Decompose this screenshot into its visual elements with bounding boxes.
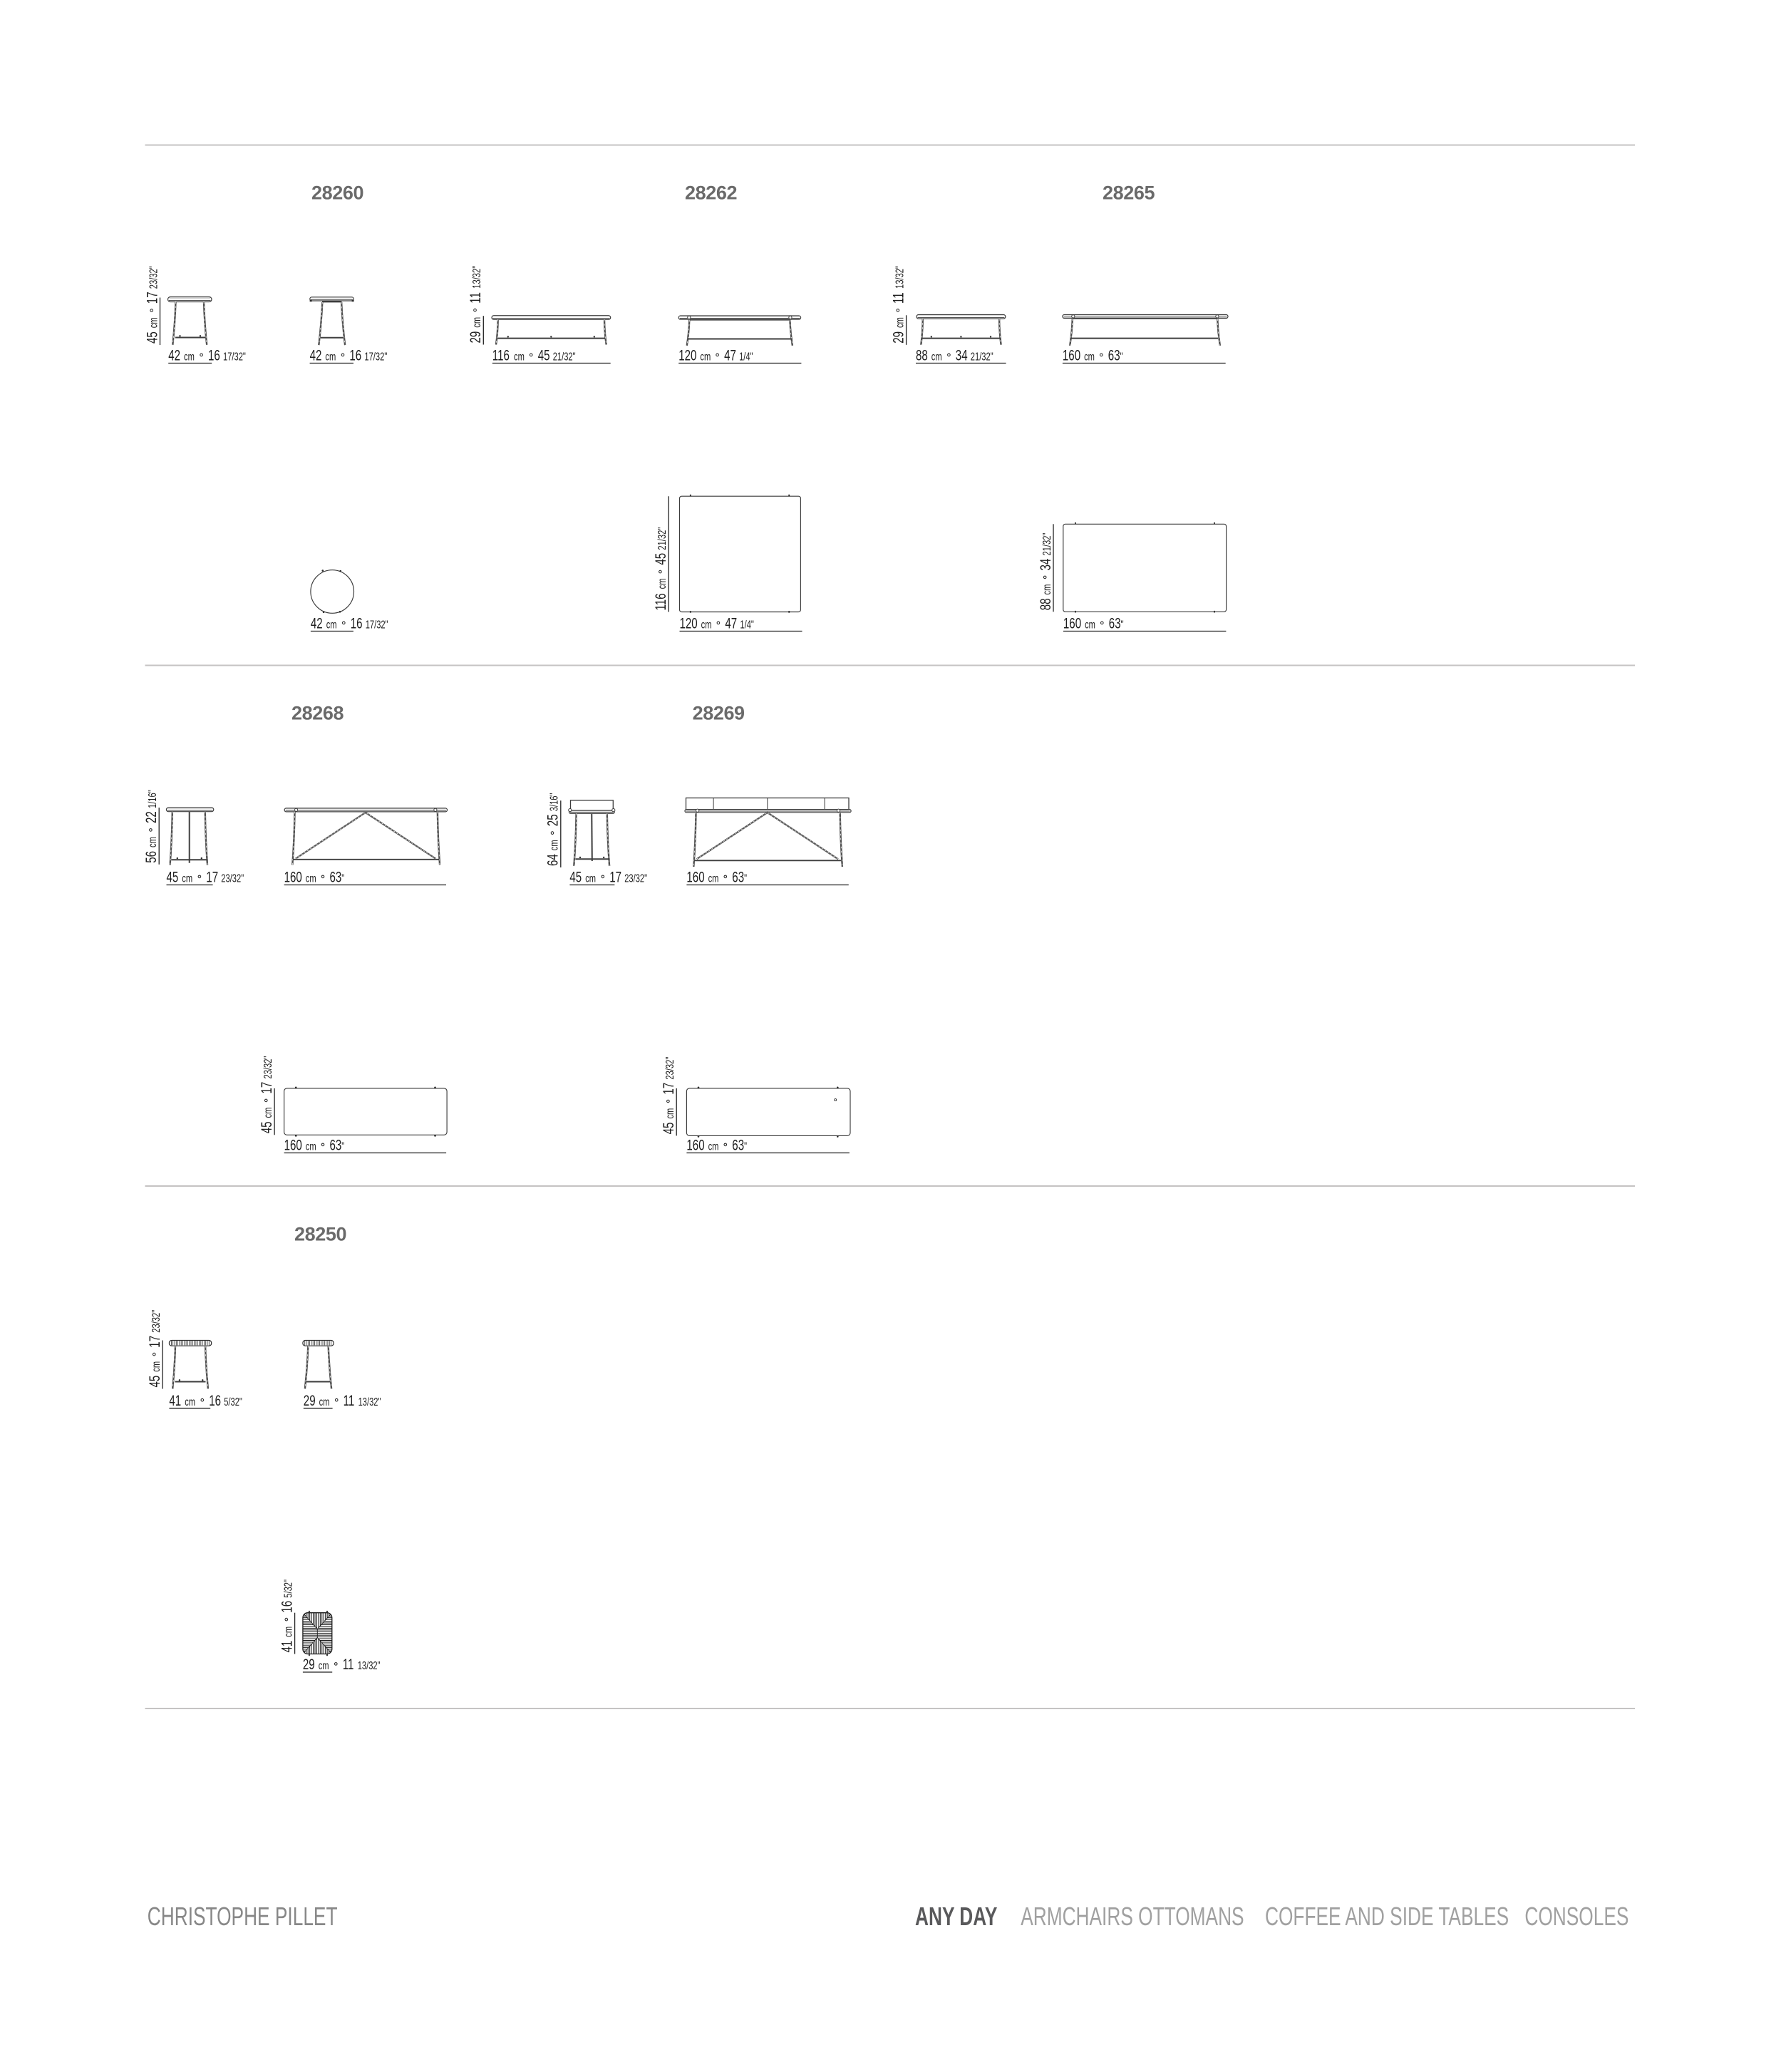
svg-text:28260: 28260 <box>311 182 363 204</box>
svg-text:CHRISTOPHE PILLET: CHRISTOPHE PILLET <box>148 1902 338 1931</box>
svg-text:28262: 28262 <box>685 182 737 204</box>
svg-text:ANY DAY: ANY DAY <box>915 1902 997 1931</box>
svg-text:28265: 28265 <box>1103 182 1155 204</box>
svg-text:28250: 28250 <box>294 1224 346 1245</box>
svg-text:CONSOLES: CONSOLES <box>1524 1902 1628 1931</box>
svg-text:ARMCHAIRS OTTOMANS: ARMCHAIRS OTTOMANS <box>1021 1902 1244 1931</box>
svg-text:28268: 28268 <box>291 703 344 724</box>
svg-text:COFFEE AND SIDE TABLES: COFFEE AND SIDE TABLES <box>1265 1902 1509 1931</box>
svg-text:28269: 28269 <box>693 703 745 724</box>
